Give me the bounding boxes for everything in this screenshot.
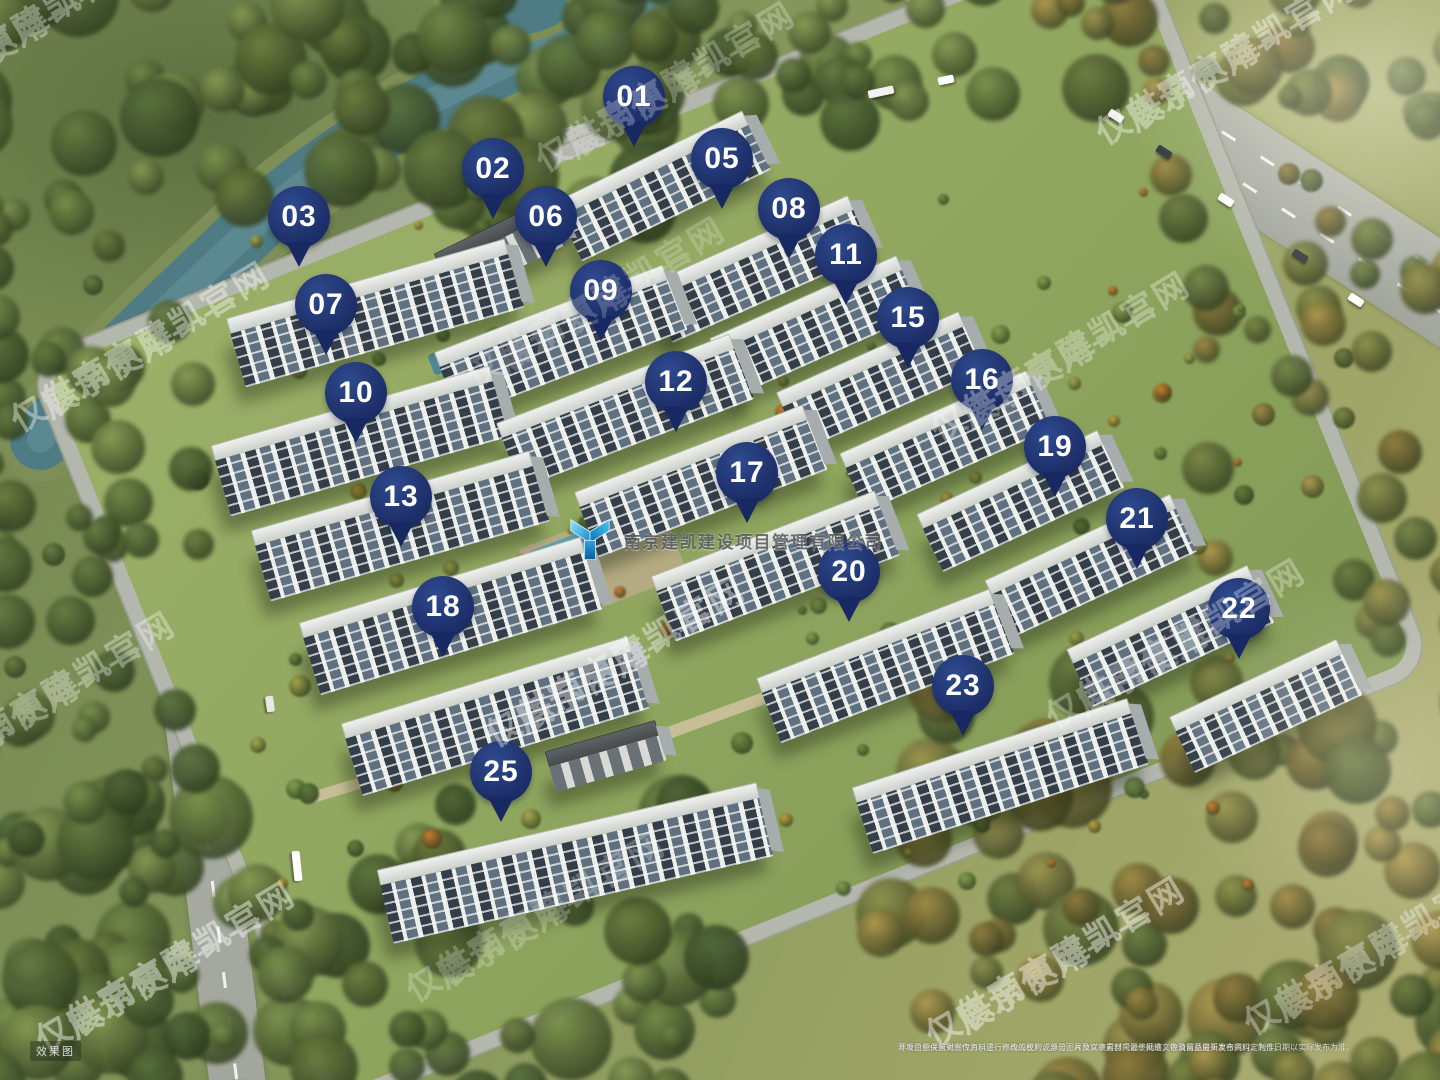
tree-cluster [342, 961, 388, 1007]
tree-cluster [215, 168, 274, 227]
tree-cluster [910, 989, 955, 1034]
tree-cluster [1184, 353, 1195, 364]
tree-cluster [422, 829, 442, 849]
tree-cluster [806, 632, 819, 645]
tree-cluster [991, 325, 1010, 344]
tree-cluster [1351, 218, 1393, 260]
marker-number: 23 [932, 655, 994, 717]
tree-cluster [200, 67, 245, 112]
tree-cluster [49, 190, 94, 235]
tree-cluster [1233, 458, 1242, 467]
tree-cluster [277, 878, 288, 889]
tree-cluster [778, 376, 789, 387]
tree-cluster [604, 897, 672, 965]
tree-cluster [938, 194, 949, 205]
building-marker-08: 08 [758, 178, 820, 240]
tree-cluster [1155, 384, 1171, 400]
tree-cluster [521, 809, 541, 829]
marker-number: 13 [370, 466, 432, 528]
tree-cluster [1081, 7, 1114, 40]
tree-cluster [1293, 965, 1359, 1031]
tree-cluster [966, 67, 1020, 121]
building-marker-11: 11 [815, 224, 877, 286]
tree-cluster [250, 235, 263, 248]
marker-number: 22 [1208, 578, 1270, 640]
tree-cluster [8, 820, 45, 857]
marker-number: 03 [268, 186, 330, 248]
tree-cluster [1387, 57, 1426, 96]
building-marker-19: 19 [1024, 416, 1086, 478]
tree-cluster [958, 872, 976, 890]
tree-cluster [119, 877, 149, 907]
tree-cluster [414, 221, 423, 230]
tree-cluster [289, 653, 302, 666]
tree-cluster [1206, 791, 1258, 843]
tree-cluster [42, 543, 65, 566]
tree-cluster [1283, 241, 1328, 286]
tree-cluster [836, 881, 851, 896]
tree-cluster [1182, 442, 1234, 494]
tree-cluster [171, 362, 215, 406]
tree-cluster [1390, 974, 1433, 1017]
tree-cluster [1125, 987, 1158, 1020]
tree-cluster [969, 471, 982, 484]
tree-cluster [72, 556, 113, 597]
tree-cluster [46, 596, 95, 645]
tree-cluster [779, 813, 793, 827]
tree-cluster [1350, 1037, 1399, 1080]
tree-cluster [93, 230, 125, 262]
marker-number: 12 [645, 351, 707, 413]
tree-cluster [1375, 796, 1410, 831]
tree-cluster [4, 656, 26, 678]
tree-cluster [1225, 37, 1283, 95]
tree-cluster [630, 14, 677, 61]
tree-cluster [183, 529, 214, 560]
tree-cluster [289, 675, 311, 697]
marker-number: 11 [815, 224, 877, 286]
building-marker-25: 25 [470, 741, 532, 803]
tree-cluster [128, 159, 164, 195]
building-marker-23: 23 [932, 655, 994, 717]
tree-cluster [622, 959, 666, 1003]
tree-cluster [1047, 859, 1056, 868]
tree-cluster [151, 829, 180, 858]
tree-cluster [1271, 355, 1313, 397]
tree-cluster [1270, 884, 1315, 929]
tree-cluster [1286, 13, 1310, 37]
tree-cluster [1301, 475, 1324, 498]
tree-cluster [684, 925, 749, 990]
tree-cluster [1183, 265, 1229, 311]
tree-cluster [120, 78, 199, 157]
tree-cluster [1206, 801, 1220, 815]
building-marker-05: 05 [691, 128, 753, 190]
tree-cluster [1278, 163, 1300, 185]
tree-cluster [1363, 579, 1410, 626]
building-marker-10: 10 [325, 362, 387, 424]
building-marker-17: 17 [716, 442, 778, 504]
building-marker-06: 06 [515, 186, 577, 248]
tree-cluster [1333, 407, 1355, 429]
tree-cluster [51, 110, 117, 176]
company-logo-watermark [566, 514, 614, 562]
tree-cluster [969, 922, 1004, 957]
tree-cluster [730, 32, 778, 80]
tree-cluster [857, 744, 869, 756]
building-marker-18: 18 [412, 576, 474, 638]
company-name-watermark: 南京建凯建设项目管理有限公司 [624, 528, 883, 553]
tree-cluster [1108, 286, 1118, 296]
tree-cluster [820, 91, 880, 151]
tree-cluster [1300, 169, 1323, 192]
building-marker-09: 09 [570, 260, 632, 322]
tree-cluster [93, 650, 135, 692]
aerial-site-plan: 南京建凯建设项目管理有限公司 效果图 本项目相关效果图仅为示意，不构成要约或承诺… [0, 0, 1440, 1080]
marker-number: 09 [570, 260, 632, 322]
tree-cluster [1394, 517, 1437, 560]
tree-cluster [121, 974, 174, 1027]
tree-cluster [1017, 955, 1064, 1002]
tree-cluster [389, 573, 404, 588]
tree-cluster [1037, 276, 1051, 290]
tree-cluster [1062, 54, 1130, 122]
tree-cluster [83, 275, 103, 295]
marker-number: 15 [877, 287, 939, 349]
tree-cluster [1357, 473, 1407, 523]
tree-cluster [1315, 206, 1346, 237]
building-marker-22: 22 [1208, 578, 1270, 640]
marker-number: 18 [412, 576, 474, 638]
marker-number: 10 [325, 362, 387, 424]
tree-cluster [1088, 820, 1101, 833]
tree-cluster [731, 732, 753, 754]
tree-cluster [84, 355, 136, 407]
tree-cluster [857, 909, 905, 957]
tree-cluster [250, 737, 266, 753]
building-marker-15: 15 [877, 287, 939, 349]
tree-cluster [298, 783, 319, 804]
tree-cluster [63, 781, 106, 824]
marker-number: 19 [1024, 416, 1086, 478]
tree-cluster [389, 1048, 425, 1080]
tree-cluster [798, 606, 807, 615]
rendering-label: 效果图 [30, 1041, 81, 1061]
tree-cluster [171, 744, 220, 793]
marker-number: 17 [716, 442, 778, 504]
building-marker-07: 07 [295, 274, 357, 336]
marker-number: 08 [758, 178, 820, 240]
tree-cluster [970, 956, 1003, 989]
tree-cluster [1138, 45, 1170, 77]
tree-cluster [334, 80, 390, 136]
tree-cluster [6, 691, 55, 740]
marker-number: 06 [515, 186, 577, 248]
building-marker-21: 21 [1106, 488, 1168, 550]
tree-cluster [1108, 415, 1120, 427]
tree-cluster [490, 25, 531, 66]
tree-cluster [1278, 85, 1302, 109]
building-marker-01: 01 [603, 66, 665, 128]
marker-number: 16 [951, 349, 1013, 411]
tree-cluster [1350, 259, 1380, 289]
tree-cluster [1351, 331, 1392, 372]
tree-cluster [1150, 154, 1192, 196]
tree-cluster [72, 717, 97, 742]
tree-cluster [1143, 77, 1171, 105]
tree-cluster [148, 300, 191, 343]
building-marker-16: 16 [951, 349, 1013, 411]
building-marker-12: 12 [645, 351, 707, 413]
tree-cluster [889, 81, 929, 121]
tree-cluster [1244, 316, 1271, 343]
tree-cluster [31, 342, 66, 377]
tree-cluster [1193, 336, 1220, 363]
tree-cluster [210, 1022, 238, 1050]
tree-cluster [659, 1024, 687, 1052]
tree-cluster [347, 840, 364, 857]
tree-cluster [530, 998, 612, 1080]
tree-cluster [123, 522, 159, 558]
tree-cluster [1124, 777, 1145, 798]
marker-number: 21 [1106, 488, 1168, 550]
tree-cluster [91, 420, 145, 474]
tree-cluster [1237, 304, 1245, 312]
tree-cluster [1154, 447, 1167, 460]
tree-cluster [389, 1011, 426, 1048]
tree-cluster [154, 689, 196, 731]
tree-cluster [1324, 737, 1391, 804]
tree-cluster [903, 887, 960, 944]
tree-cluster [1301, 301, 1346, 346]
marker-number: 01 [603, 66, 665, 128]
tree-cluster [614, 586, 626, 598]
tree-cluster [1298, 819, 1356, 877]
tree-cluster [1378, 430, 1422, 474]
tree-cluster [417, 1, 490, 74]
tree-cluster [1112, 302, 1133, 323]
marker-number: 07 [295, 274, 357, 336]
tree-cluster [576, 10, 636, 70]
tree-cluster [1159, 194, 1208, 243]
marker-number: 05 [691, 128, 753, 190]
tree-cluster [1407, 100, 1440, 140]
tree-cluster [1234, 485, 1254, 505]
tree-cluster [1193, 57, 1219, 83]
tree-cluster [228, 864, 286, 922]
building-marker-03: 03 [268, 186, 330, 248]
tree-cluster [1068, 377, 1081, 390]
tree-cluster [66, 504, 93, 531]
tree-cluster [282, 899, 314, 931]
tree-cluster [1142, 877, 1199, 934]
tree-cluster [169, 447, 213, 491]
tree-cluster [932, 32, 977, 77]
tree-cluster [776, 58, 811, 93]
tree-cluster [904, 848, 913, 857]
tree-cluster [104, 478, 153, 527]
tree-cluster [289, 61, 327, 99]
tree-cluster [1370, 621, 1406, 657]
marker-number: 25 [470, 741, 532, 803]
disclaimer-line-2: 开发企业保留对宣传资料进行修改的权利，部分图片及文字素材来源于网络，敬请留意最新… [898, 1042, 1354, 1053]
tree-cluster [1062, 888, 1100, 926]
tree-cluster [103, 769, 149, 815]
tree-cluster [257, 946, 314, 1003]
tree-cluster [1242, 879, 1254, 891]
tree-cluster [1139, 188, 1148, 197]
tree-cluster [1252, 403, 1275, 426]
tree-cluster [1199, 3, 1230, 34]
tree-cluster [500, 1018, 535, 1053]
building-marker-13: 13 [370, 466, 432, 528]
